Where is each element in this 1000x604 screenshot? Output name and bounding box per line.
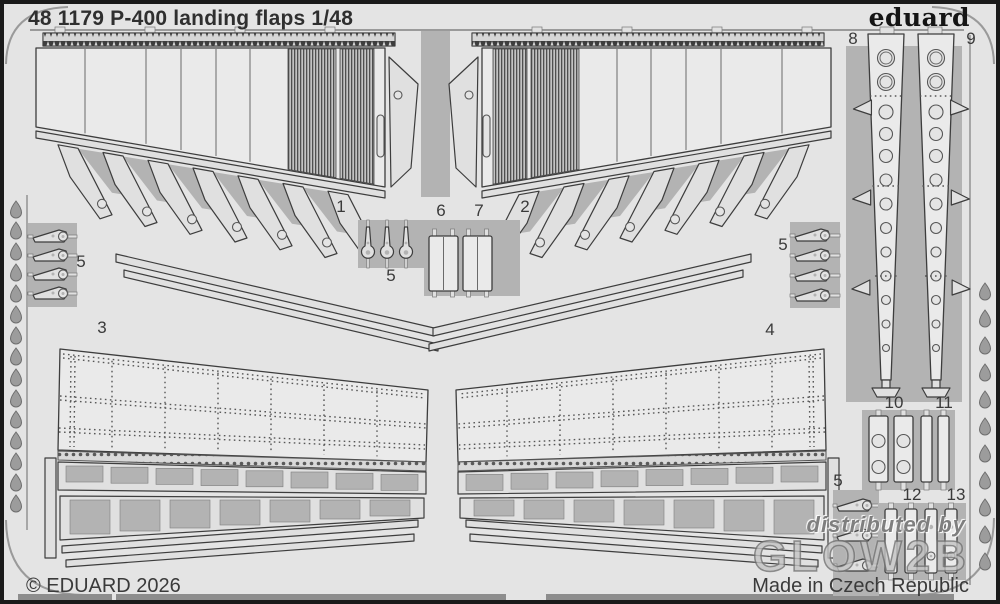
part-label-1: 1 xyxy=(336,197,345,217)
hinge-parts-5-left xyxy=(28,223,77,307)
catalog-title: 48 1179 P-400 landing flaps 1/48 xyxy=(28,7,353,31)
part-label-9: 9 xyxy=(966,29,975,49)
part-label-3: 3 xyxy=(97,318,106,338)
part-label-5: 5 xyxy=(833,471,842,491)
copyright-text: © EDUARD 2026 xyxy=(26,575,181,598)
part-label-10: 10 xyxy=(885,393,904,413)
pe-fret-product-photo: 48 1179 P-400 landing flaps 1/48 eduard … xyxy=(0,0,1000,604)
part-label-12: 12 xyxy=(903,485,922,505)
part-label-5: 5 xyxy=(778,235,787,255)
pe-fret-artwork xyxy=(4,4,996,600)
made-in-text: Made in Czech Republic xyxy=(752,575,969,598)
part-label-11: 11 xyxy=(935,393,953,413)
part-label-5: 5 xyxy=(386,266,395,286)
part-label-8: 8 xyxy=(848,29,857,49)
part-label-4: 4 xyxy=(765,320,774,340)
eduard-logo: eduard xyxy=(869,3,970,32)
hinge-parts-5-right xyxy=(790,222,840,308)
part-label-7: 7 xyxy=(474,201,483,221)
rib-strips-parts-8-9 xyxy=(846,27,970,402)
part-label-2: 2 xyxy=(520,197,529,217)
part-label-13: 13 xyxy=(947,485,966,505)
panel-parts-10-11 xyxy=(862,410,955,490)
part-label-6: 6 xyxy=(436,201,445,221)
part-label-5: 5 xyxy=(76,252,85,272)
panel-parts-12-13 xyxy=(878,503,966,580)
